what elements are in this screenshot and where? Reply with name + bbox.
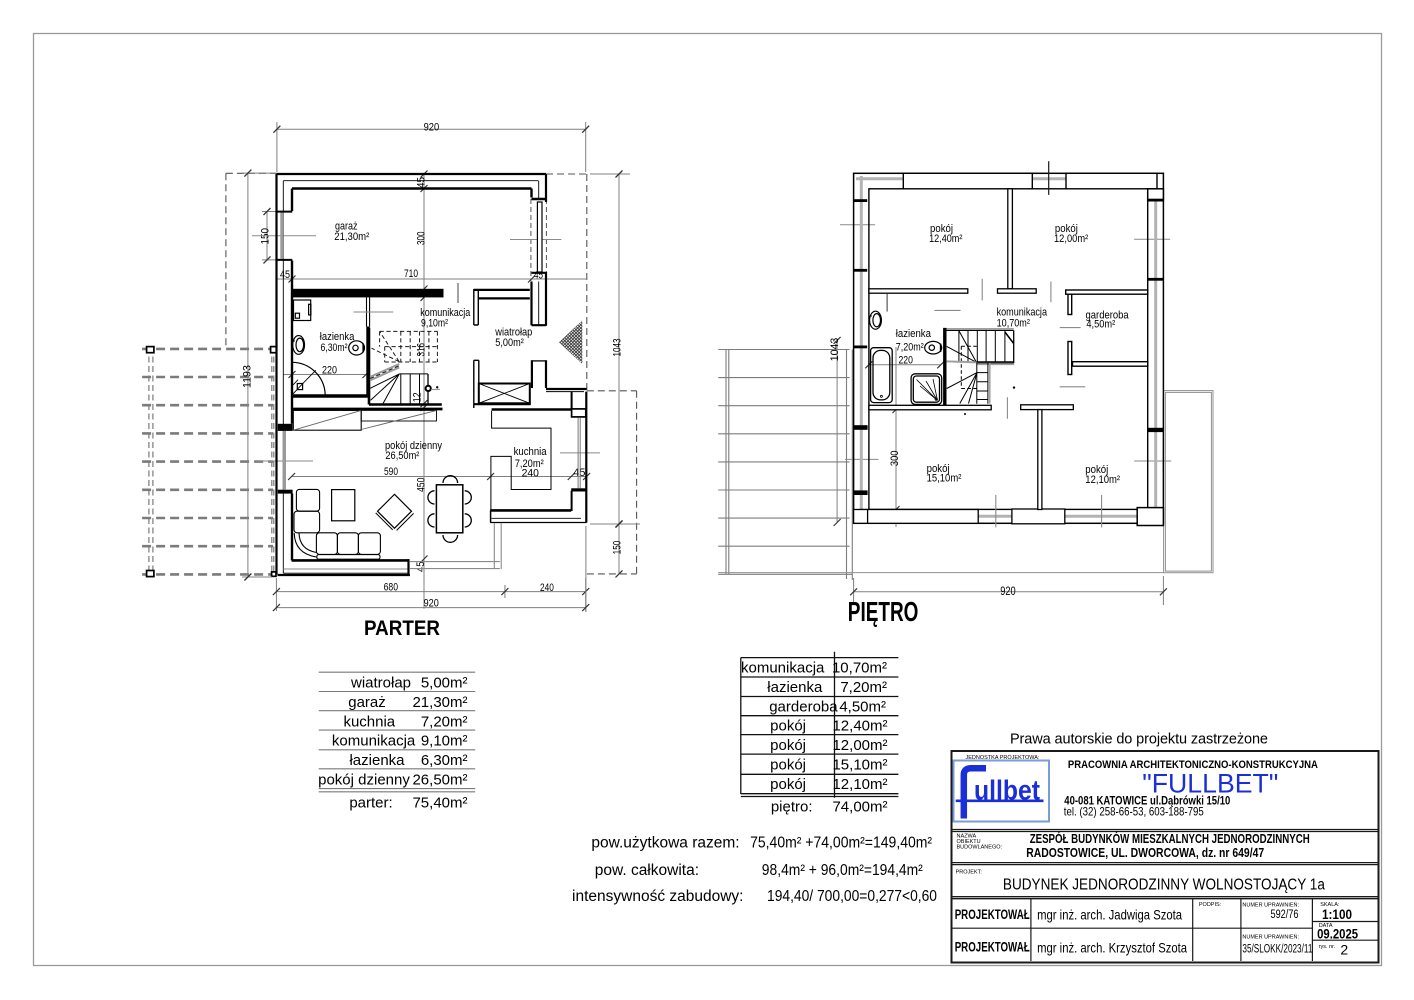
svg-text:45: 45 [573, 467, 585, 479]
svg-text:pokój: pokój [770, 737, 806, 754]
svg-text:194,40/ 700,00=0,277<0,60: 194,40/ 700,00=0,277<0,60 [767, 888, 937, 905]
svg-text:920: 920 [424, 597, 439, 609]
svg-text:kuchnia: kuchnia [514, 446, 548, 458]
svg-text:592/76: 592/76 [1271, 909, 1299, 921]
svg-text:4,50m²: 4,50m² [839, 698, 886, 715]
svg-text:45: 45 [415, 177, 427, 188]
svg-text:pokój: pokój [770, 776, 806, 793]
svg-text:45: 45 [280, 269, 290, 281]
svg-text:15,10m²: 15,10m² [927, 473, 962, 485]
svg-text:parter:: parter: [349, 795, 392, 812]
svg-text:590: 590 [384, 466, 398, 478]
svg-text:pokój: pokój [770, 718, 806, 735]
svg-text:9,10m²: 9,10m² [421, 733, 468, 750]
svg-text:12,00m²: 12,00m² [832, 737, 887, 754]
svg-text:7,20m²: 7,20m² [515, 458, 544, 470]
svg-text:1043: 1043 [612, 339, 624, 357]
svg-text:pow. całkowita:: pow. całkowita: [595, 862, 699, 879]
svg-text:75,40m²: 75,40m² [412, 795, 467, 812]
svg-text:2: 2 [1340, 942, 1348, 958]
svg-text:316: 316 [415, 343, 427, 357]
svg-text:5,00m²: 5,00m² [421, 675, 468, 692]
svg-text:pow.użytkowa razem:: pow.użytkowa razem: [591, 835, 739, 852]
svg-text:10,70m²: 10,70m² [997, 317, 1031, 329]
svg-text:12,10m²: 12,10m² [1085, 474, 1120, 486]
svg-text:12,00m²: 12,00m² [1054, 233, 1088, 245]
svg-text:98,4m² + 96,0m²=194,4m²: 98,4m² + 96,0m²=194,4m² [762, 862, 923, 879]
svg-text:1:100: 1:100 [1322, 906, 1352, 922]
svg-text:mgr inż. arch. Jadwiga Szota: mgr inż. arch. Jadwiga Szota [1037, 907, 1182, 923]
svg-text:intensywność zabudowy:: intensywność zabudowy: [572, 888, 743, 905]
svg-text:7,20m²: 7,20m² [421, 713, 468, 730]
svg-text:12,10m²: 12,10m² [832, 776, 887, 793]
svg-text:mgr inż. arch. Krzysztof Szo: mgr inż. arch. Krzysztof Szota [1037, 939, 1187, 955]
svg-text:12: 12 [411, 393, 423, 403]
svg-text:09.2025: 09.2025 [1317, 926, 1358, 942]
svg-text:PROJEKT:: PROJEKT: [956, 870, 983, 876]
svg-text:PROJEKTOWAŁ: PROJEKTOWAŁ [955, 907, 1030, 922]
svg-text:12,40m²: 12,40m² [832, 718, 887, 735]
svg-text:wiatrołap: wiatrołap [350, 675, 411, 692]
svg-text:kuchnia: kuchnia [343, 713, 395, 730]
svg-text:1043: 1043 [829, 338, 841, 361]
svg-text:ZESPÓŁ BUDYNKÓW MIESZKALNYCH J: ZESPÓŁ BUDYNKÓW MIESZKALNYCH JEDNORODZIN… [1030, 831, 1310, 846]
svg-text:łazienka: łazienka [349, 752, 405, 769]
svg-text:RADOSTOWICE, UL. DWORCOWA, dz.: RADOSTOWICE, UL. DWORCOWA, dz. nr 649/47 [1026, 846, 1264, 860]
svg-text:łazienka: łazienka [767, 679, 823, 696]
svg-text:PARTER: PARTER [364, 616, 440, 640]
svg-text:4,50m²: 4,50m² [1086, 318, 1115, 330]
svg-text:BUDOWLANEGO:: BUDOWLANEGO: [957, 845, 1003, 851]
svg-text:75,40m² +74,00m²=149,40m²: 75,40m² +74,00m²=149,40m² [750, 835, 932, 852]
svg-text:BUDYNEK JEDNORODZINNY WOLNOSTO: BUDYNEK JEDNORODZINNY WOLNOSTOJĄCY 1a [1003, 877, 1325, 894]
svg-text:5,00m²: 5,00m² [495, 337, 524, 349]
svg-text:garaż: garaż [348, 694, 386, 711]
svg-text:710: 710 [404, 268, 418, 280]
svg-text:26,50m²: 26,50m² [385, 450, 419, 462]
svg-text:74,00m²: 74,00m² [832, 799, 887, 816]
svg-text:Prawa autorskie do projektu z: Prawa autorskie do projektu zastrzeżone [1010, 732, 1268, 748]
svg-text:6,30m²: 6,30m² [421, 752, 468, 769]
svg-text:piętro:: piętro: [771, 799, 813, 816]
svg-text:PODPIS:: PODPIS: [1199, 902, 1222, 908]
svg-text:21,30m²: 21,30m² [334, 231, 369, 243]
svg-text:300: 300 [889, 451, 901, 467]
svg-text:45: 45 [415, 562, 427, 572]
svg-text:pokój: pokój [770, 757, 806, 774]
svg-text:NUMER UPRAWNIEŃ:: NUMER UPRAWNIEŃ: [1242, 902, 1299, 909]
svg-text:łazienka: łazienka [896, 328, 932, 340]
svg-text:15,10m²: 15,10m² [832, 757, 887, 774]
svg-text:450: 450 [415, 478, 427, 492]
svg-text:300: 300 [415, 232, 427, 246]
svg-text:garderoba: garderoba [769, 698, 838, 715]
svg-text:rys. nr.: rys. nr. [1319, 944, 1336, 950]
svg-text:150: 150 [259, 228, 271, 245]
svg-text:PIĘTRO: PIĘTRO [848, 596, 919, 627]
svg-text:komunikacja: komunikacja [332, 733, 416, 750]
svg-text:7,20m²: 7,20m² [896, 341, 924, 353]
svg-text:150: 150 [612, 541, 624, 555]
svg-text:220: 220 [322, 365, 337, 377]
svg-text:komunikacja: komunikacja [741, 660, 825, 677]
svg-text:680: 680 [384, 582, 398, 594]
svg-text:10,70m²: 10,70m² [832, 660, 887, 677]
svg-text:6,30m²: 6,30m² [321, 342, 348, 354]
svg-text:35/SLOKK/2023/11: 35/SLOKK/2023/11 [1242, 943, 1312, 955]
svg-text:9,10m²: 9,10m² [421, 318, 448, 330]
svg-text:NUMER UPRAWNIEŃ:: NUMER UPRAWNIEŃ: [1242, 934, 1299, 941]
svg-text:920: 920 [1000, 586, 1016, 598]
svg-text:12,40m²: 12,40m² [929, 233, 963, 245]
svg-text:PROJEKTOWAŁ: PROJEKTOWAŁ [955, 940, 1030, 955]
svg-text:21,30m²: 21,30m² [412, 694, 467, 711]
svg-text:220: 220 [899, 354, 913, 366]
svg-text:1193: 1193 [241, 365, 253, 388]
svg-text:26,50m²: 26,50m² [412, 772, 467, 789]
svg-text:7,20m²: 7,20m² [840, 679, 887, 696]
svg-text:ullbet: ullbet [974, 774, 1040, 805]
svg-text:pokój dzienny: pokój dzienny [318, 772, 410, 789]
svg-text:tel. (32) 258-66-53, 603-188-7: tel. (32) 258-66-53, 603-188-795 [1064, 804, 1204, 818]
svg-text:240: 240 [540, 582, 554, 594]
svg-text:920: 920 [424, 121, 440, 133]
